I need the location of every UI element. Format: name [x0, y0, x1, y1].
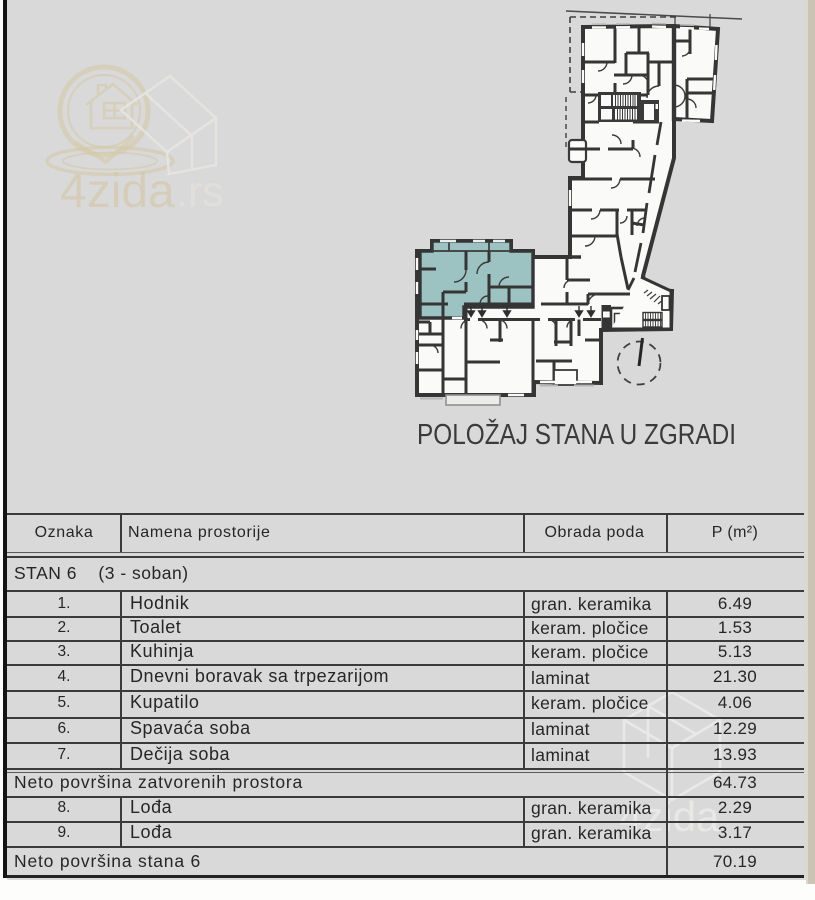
svg-text:.rs: .rs [176, 168, 224, 216]
svg-text:4zida: 4zida [60, 165, 175, 218]
